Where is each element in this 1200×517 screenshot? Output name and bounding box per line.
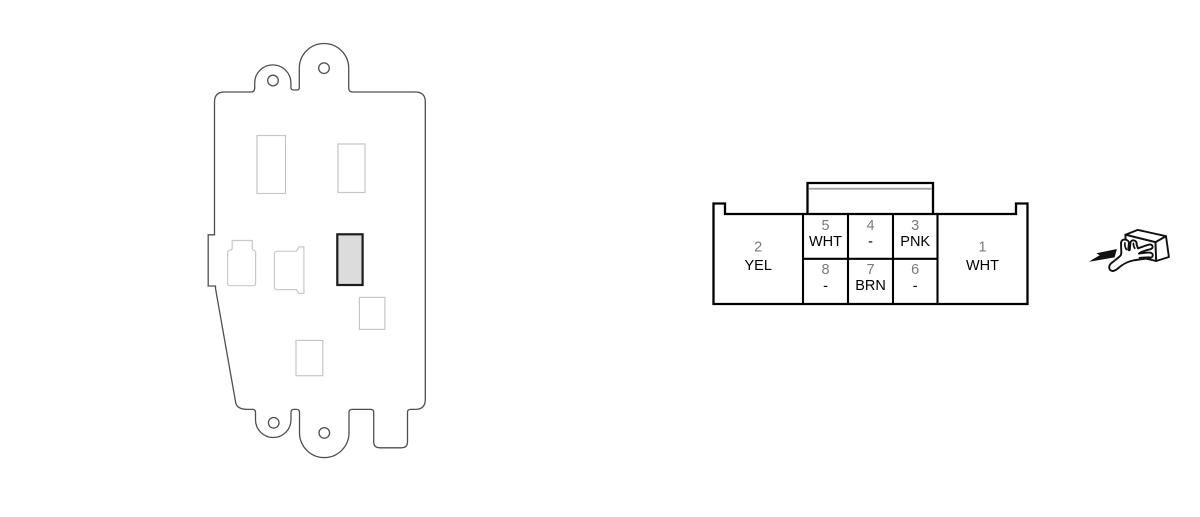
svg-text:YEL: YEL [744, 258, 771, 274]
svg-text:PNK: PNK [900, 234, 930, 250]
svg-text:5: 5 [821, 218, 829, 234]
svg-text:WHT: WHT [809, 234, 842, 250]
svg-text:BRN: BRN [855, 278, 886, 294]
svg-text:2: 2 [754, 240, 762, 256]
svg-text:3: 3 [911, 218, 919, 234]
svg-text:7: 7 [866, 262, 874, 278]
svg-text:-: - [868, 234, 873, 250]
svg-text:-: - [823, 278, 828, 294]
svg-text:8: 8 [821, 262, 829, 278]
svg-text:1: 1 [978, 240, 986, 256]
svg-text:6: 6 [911, 262, 919, 278]
svg-text:-: - [913, 278, 918, 294]
svg-text:4: 4 [866, 218, 874, 234]
svg-text:WHT: WHT [966, 258, 999, 274]
